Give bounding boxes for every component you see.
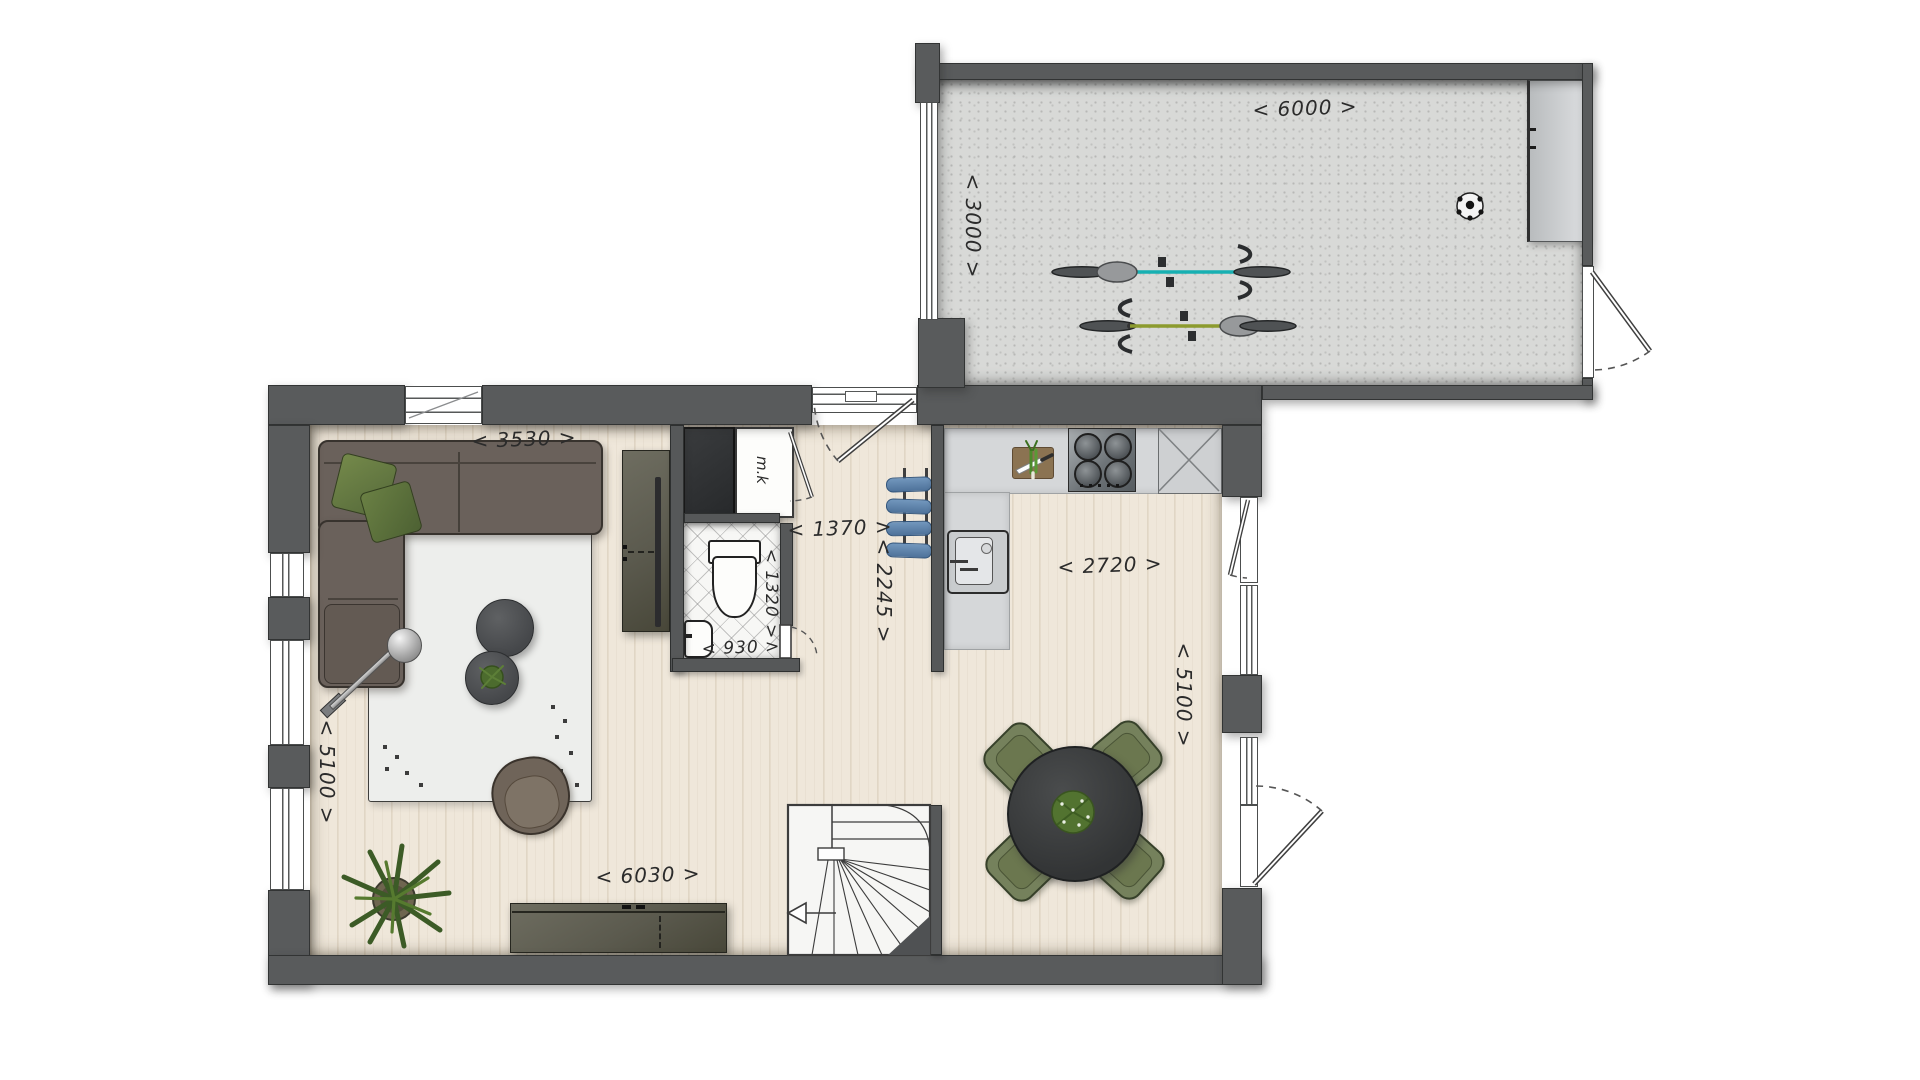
window-left-1 [270, 553, 304, 597]
dimension-garage-depth: < 3000 > [962, 181, 984, 271]
garage-pillar-top-left [915, 43, 940, 103]
tv-cabinet [622, 450, 670, 632]
coffee-table-large [476, 599, 534, 657]
garage-workbench [1527, 80, 1586, 242]
burner-1 [1074, 433, 1102, 461]
sink-drain [981, 543, 992, 554]
burner-3 [1074, 460, 1102, 488]
burner-2 [1104, 433, 1132, 461]
sideboard-top-line [512, 911, 725, 913]
dimension-toilet-depth: < 1320 > [760, 551, 782, 637]
wall-hall-right [931, 425, 944, 672]
floor-plan-canvas: < 6000 > < 3000 > < 3530 > < 5100 > < 13… [0, 0, 1920, 1080]
wall-left-pier-2 [268, 745, 310, 788]
wall-bottom [268, 955, 1262, 985]
wall-top-right [917, 385, 1262, 425]
garage-window-left [920, 102, 938, 320]
coat-2 [886, 498, 932, 515]
sofa-left-seam [328, 598, 398, 600]
wall-hall-left [670, 425, 684, 672]
tv-cabinet-handles [623, 545, 627, 549]
garage-wall-top [917, 63, 1593, 80]
dimension-garage-width: < 6000 > [1235, 95, 1376, 122]
meter-cupboard-label: m.k [752, 450, 772, 490]
wall-right-lower [1222, 888, 1262, 985]
cutting-board [1012, 447, 1054, 479]
tv-cabinet-dash [628, 551, 654, 553]
window-left-3 [270, 788, 304, 890]
dimension-living-width: < 3530 > [454, 426, 595, 453]
burner-4 [1104, 460, 1132, 488]
dimension-hall-depth: < 2245 > [873, 546, 895, 636]
window-right-2 [1240, 737, 1258, 805]
dimension-kitchen-width: < 2720 > [1040, 552, 1181, 579]
storage-closet [683, 427, 735, 518]
garage-wall-bottom [1262, 385, 1593, 400]
dimension-hall-width: < 1370 > [770, 515, 911, 542]
wall-toilet-top [684, 513, 780, 523]
wall-left-upper [268, 425, 310, 553]
wall-top-middle [482, 385, 812, 425]
dining-table [1007, 746, 1143, 882]
dimension-toilet-width: < 930 > [691, 635, 792, 660]
coat-1 [886, 476, 932, 493]
entrance-sill-detail [845, 391, 877, 402]
garage-door-strip [1582, 266, 1594, 378]
window-left-2 [270, 640, 304, 745]
garden-door [1254, 786, 1322, 884]
workbench-handles [1530, 128, 1536, 131]
tv-panel [655, 477, 661, 627]
window-right-1 [1240, 585, 1258, 675]
dimension-house-width: < 6030 > [578, 862, 719, 889]
wall-left-pier-1 [268, 597, 310, 640]
wall-right-pier [1222, 675, 1262, 733]
wall-right-upper [1222, 425, 1262, 497]
rug-speckles-bottom [548, 700, 550, 702]
appliance-crossed-box [1158, 428, 1222, 494]
garage-side-door [1592, 272, 1650, 370]
rug-speckles-left [380, 742, 382, 744]
toilet-bowl [712, 556, 757, 618]
sideboard-divider-dash [659, 916, 661, 948]
dimension-living-depth: < 5100 > [316, 727, 338, 817]
sink-faucet [950, 560, 968, 563]
garage-wall-right-upper [1582, 63, 1593, 266]
dimension-kitchen-depth: < 5100 > [1173, 650, 1195, 740]
garage-wall-left-lower [918, 318, 965, 388]
sideboard-handles [622, 905, 631, 909]
coffee-table-small [465, 651, 519, 705]
wall-top-left [268, 385, 405, 425]
side-door-strip [1240, 497, 1258, 583]
garden-door-strip [1240, 805, 1258, 887]
cooktop-knobs [1080, 484, 1083, 487]
window-top-living [405, 386, 482, 424]
wall-stairs-right [930, 805, 942, 955]
sofa-seam-vertical [458, 452, 460, 532]
garage-floor [938, 80, 1584, 386]
lamp-sphere [387, 628, 422, 663]
